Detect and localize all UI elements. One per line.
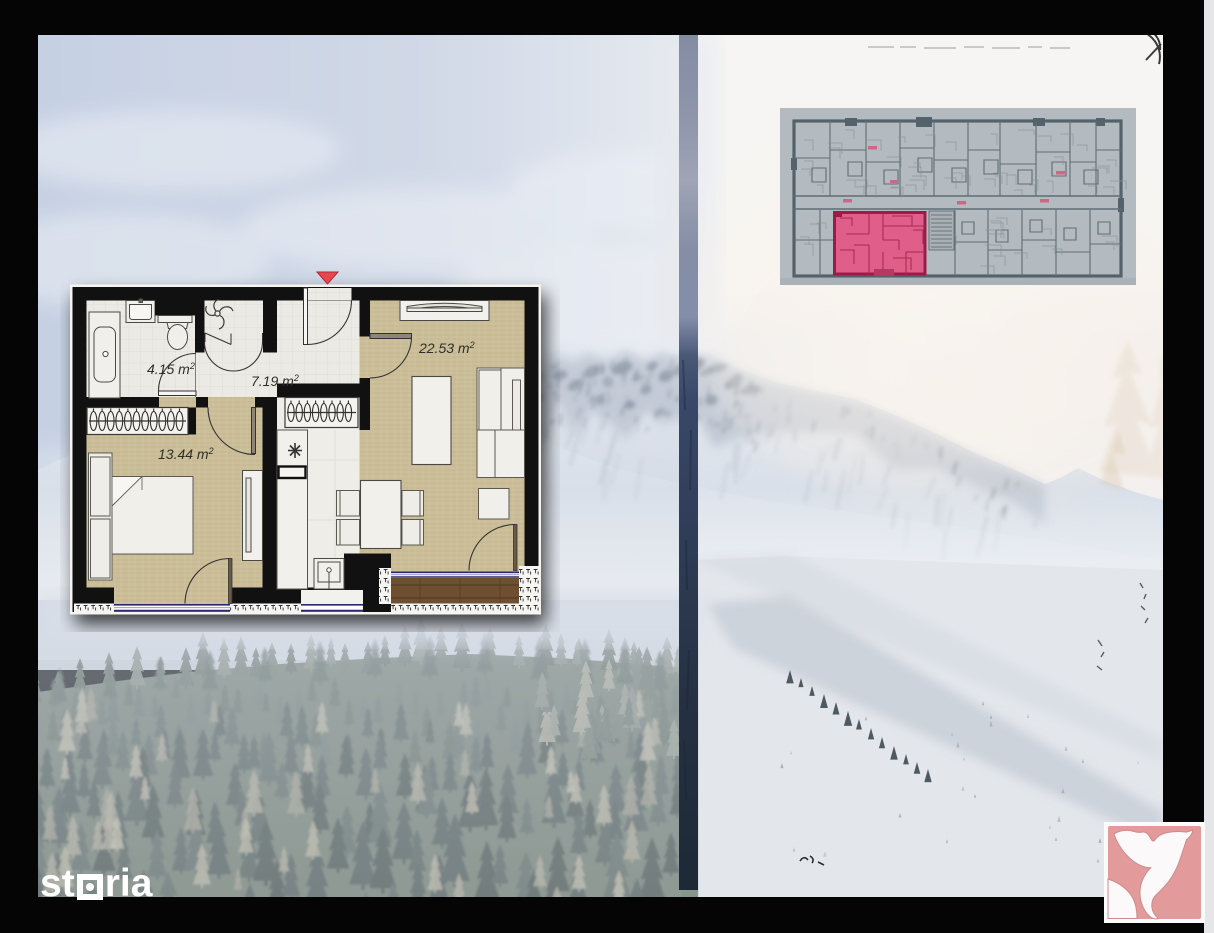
svg-text:7.19 m2: 7.19 m2 xyxy=(251,373,299,389)
svg-text:22.53 m2: 22.53 m2 xyxy=(418,340,475,356)
svg-text:13.44 m2: 13.44 m2 xyxy=(158,446,214,462)
svg-text:4.15 m2: 4.15 m2 xyxy=(147,361,195,377)
